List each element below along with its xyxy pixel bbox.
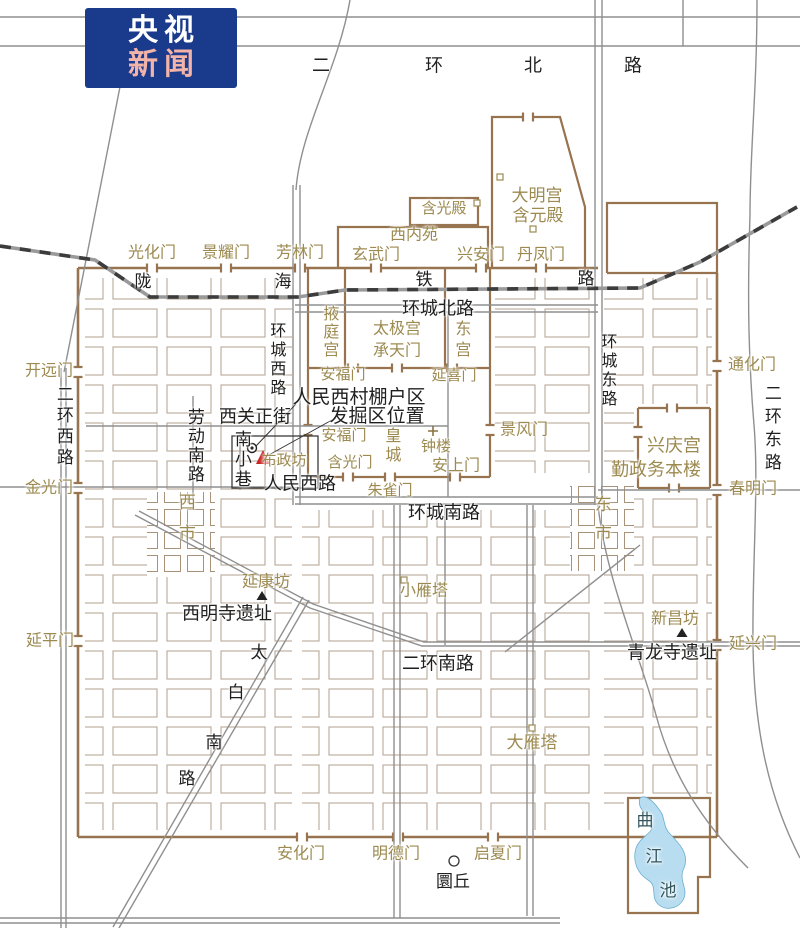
map-label: 池 [660, 882, 677, 900]
map-label: 人民西村棚户区 [292, 388, 425, 408]
map-label: 延康坊 [242, 575, 290, 592]
map-label: 南 [206, 734, 223, 752]
map-label: 二环南路 [402, 655, 474, 674]
logo-line1: 央视 [122, 14, 200, 48]
map-labels-layer: 光化门景耀门芳林门玄武门兴安门丹凤门西内苑含光殿大明宫含元殿开远门金光门延平门通… [0, 0, 800, 928]
map-label: 陇 [135, 273, 152, 291]
map-label: 安上门 [432, 459, 480, 476]
map-label: 西关正街 [219, 408, 291, 427]
map-label: 开远门 [25, 364, 73, 381]
map-label: 景耀门 [202, 246, 250, 263]
map-label: 路 [578, 270, 595, 288]
map-label: 安福门 [321, 429, 366, 445]
map-label: 劳动南路 [185, 408, 203, 484]
map-label: 明德门 [372, 847, 420, 864]
map-label: 圜丘 [436, 873, 470, 891]
map-label: 环城南路 [408, 504, 480, 523]
map-label: 金光门 [25, 481, 73, 498]
map-label: 路 [179, 770, 196, 788]
map-label: 曲 [637, 812, 654, 830]
map-label: 东市 [592, 495, 610, 553]
map-label: 人民西路 [264, 475, 336, 494]
map-label: 承天门 [373, 344, 421, 361]
map-label: 掖庭宫 [320, 305, 337, 359]
cctv-news-logo: 央视 新闻 [85, 8, 237, 88]
news-map-graphic: 央视 新闻 光化门景耀门芳林门玄武门兴安门丹凤门西内苑含光殿大明宫含元殿开远门金… [0, 0, 800, 928]
map-label: 朱雀门 [367, 484, 412, 500]
map-label: 玄武门 [352, 248, 400, 265]
logo-line2: 新闻 [122, 48, 200, 82]
map-label: 通化门 [728, 358, 776, 375]
map-label: 大雁塔 [507, 734, 558, 752]
map-label: 安福门 [320, 368, 365, 384]
map-label: 兴安门 [457, 248, 505, 265]
map-label: 钟楼 [421, 440, 451, 456]
map-label: 含光门 [327, 456, 372, 472]
map-label: 环城东路 [598, 333, 615, 409]
map-label: 南小巷 [232, 430, 250, 490]
map-label: 丹凤门 [517, 248, 565, 265]
map-label: 发掘区位置 [329, 407, 424, 427]
map-label: 东宫 [452, 320, 469, 362]
map-label: 延兴门 [729, 637, 777, 654]
map-label: 西内苑 [390, 228, 438, 245]
map-label: 光化门 [128, 246, 176, 263]
map-label: 新昌坊 [651, 612, 699, 629]
map-label: 二 [312, 57, 330, 76]
map-label: 北 [524, 57, 542, 76]
map-label: 延平门 [26, 634, 74, 651]
map-label: 环城西路 [267, 322, 284, 398]
map-label: 太 [251, 644, 268, 662]
map-label: 小雁塔 [400, 584, 448, 601]
map-label: 安化门 [277, 847, 325, 864]
map-label: 勤政务本楼 [611, 461, 701, 480]
map-label: 白 [228, 684, 245, 702]
map-label: 路 [624, 57, 642, 76]
map-label: 环城北路 [402, 300, 474, 319]
map-label: 春明门 [729, 482, 777, 499]
map-label: 青龙寺遗址 [627, 644, 717, 663]
map-label: 二环西路 [54, 385, 72, 469]
map-label: 西明寺遗址 [182, 605, 272, 624]
map-label: 铁 [416, 271, 433, 289]
map-label: 西市 [176, 493, 194, 555]
map-label: 含光殿 [421, 202, 466, 218]
map-label: 环 [425, 57, 443, 76]
map-label: 布政坊 [261, 454, 306, 470]
map-label: 海 [275, 273, 292, 291]
map-label: 江 [646, 848, 663, 866]
map-label: 兴庆宫 [647, 437, 701, 456]
map-label: 二环东路 [762, 384, 780, 476]
map-label: 含元殿 [513, 207, 564, 225]
map-label: 芳林门 [276, 246, 324, 263]
map-label: 太极宫 [373, 322, 421, 339]
map-label: 延喜门 [431, 369, 476, 385]
map-label: 景风门 [500, 423, 548, 440]
map-label: 皇城 [382, 427, 399, 465]
map-label: 启夏门 [474, 847, 522, 864]
map-label: 大明宫 [512, 187, 563, 205]
